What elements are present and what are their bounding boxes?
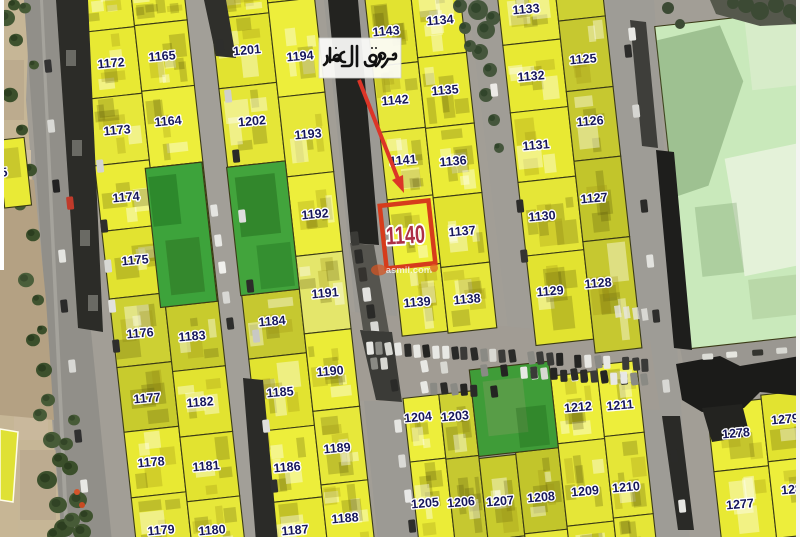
svg-text:1136: 1136	[439, 153, 467, 169]
svg-text:1179: 1179	[147, 522, 175, 538]
svg-text:1207: 1207	[486, 493, 515, 509]
svg-text:1205: 1205	[411, 495, 440, 511]
svg-text:1188: 1188	[331, 510, 359, 526]
svg-text:1212: 1212	[564, 399, 593, 415]
svg-text:1209: 1209	[571, 483, 600, 499]
svg-text:1126: 1126	[576, 113, 604, 129]
svg-text:1130: 1130	[528, 208, 556, 224]
svg-text:1164: 1164	[154, 113, 182, 129]
svg-text:1279: 1279	[771, 411, 800, 427]
svg-text:1210: 1210	[612, 479, 641, 495]
svg-text:1172: 1172	[97, 55, 125, 71]
svg-text:1143: 1143	[372, 23, 400, 39]
svg-text:1173: 1173	[103, 122, 131, 138]
svg-text:1177: 1177	[133, 390, 161, 406]
svg-text:1132: 1132	[517, 68, 545, 84]
svg-text:1211: 1211	[606, 397, 634, 413]
svg-text:1191: 1191	[311, 285, 339, 301]
svg-text:1140: 1140	[385, 220, 425, 250]
svg-text:1175: 1175	[121, 252, 149, 268]
svg-text:1190: 1190	[316, 363, 344, 379]
svg-text:1125: 1125	[569, 51, 597, 67]
svg-text:1139: 1139	[403, 294, 431, 310]
svg-text:1194: 1194	[286, 48, 314, 64]
svg-text:1142: 1142	[381, 92, 409, 108]
svg-text:1133: 1133	[512, 1, 540, 17]
svg-text:1204: 1204	[404, 409, 433, 425]
svg-text:1134: 1134	[426, 12, 454, 28]
svg-text:1201: 1201	[233, 42, 262, 58]
svg-text:1129: 1129	[536, 283, 564, 299]
svg-text:1208: 1208	[527, 489, 556, 505]
svg-text:1181: 1181	[192, 458, 220, 474]
svg-text:1192: 1192	[301, 206, 329, 222]
svg-text:1131: 1131	[522, 137, 550, 153]
svg-text:1138: 1138	[453, 291, 481, 307]
svg-text:1278: 1278	[722, 425, 751, 441]
svg-text:asmil.com: asmil.com	[386, 265, 432, 276]
svg-text:1178: 1178	[137, 454, 165, 470]
svg-text:1189: 1189	[323, 440, 351, 456]
svg-text:1206: 1206	[447, 494, 476, 510]
svg-text:1277: 1277	[726, 496, 755, 512]
svg-text:1187: 1187	[281, 522, 309, 538]
svg-text:1186: 1186	[273, 459, 301, 475]
svg-text:1128: 1128	[584, 275, 612, 291]
svg-text:1183: 1183	[178, 328, 206, 344]
svg-text:1176: 1176	[126, 325, 154, 341]
svg-text:1174: 1174	[112, 189, 140, 205]
svg-text:1127: 1127	[580, 190, 608, 206]
svg-text:1137: 1137	[448, 223, 476, 239]
svg-text:1135: 1135	[431, 82, 459, 98]
svg-text:1185: 1185	[266, 384, 294, 400]
svg-text:1182: 1182	[186, 394, 214, 410]
svg-text:1180: 1180	[198, 522, 226, 538]
svg-text:1193: 1193	[294, 126, 322, 142]
svg-text:1165: 1165	[148, 48, 176, 64]
svg-text:1203: 1203	[441, 408, 470, 424]
svg-text:1184: 1184	[258, 313, 286, 329]
svg-text:1202: 1202	[238, 113, 267, 129]
